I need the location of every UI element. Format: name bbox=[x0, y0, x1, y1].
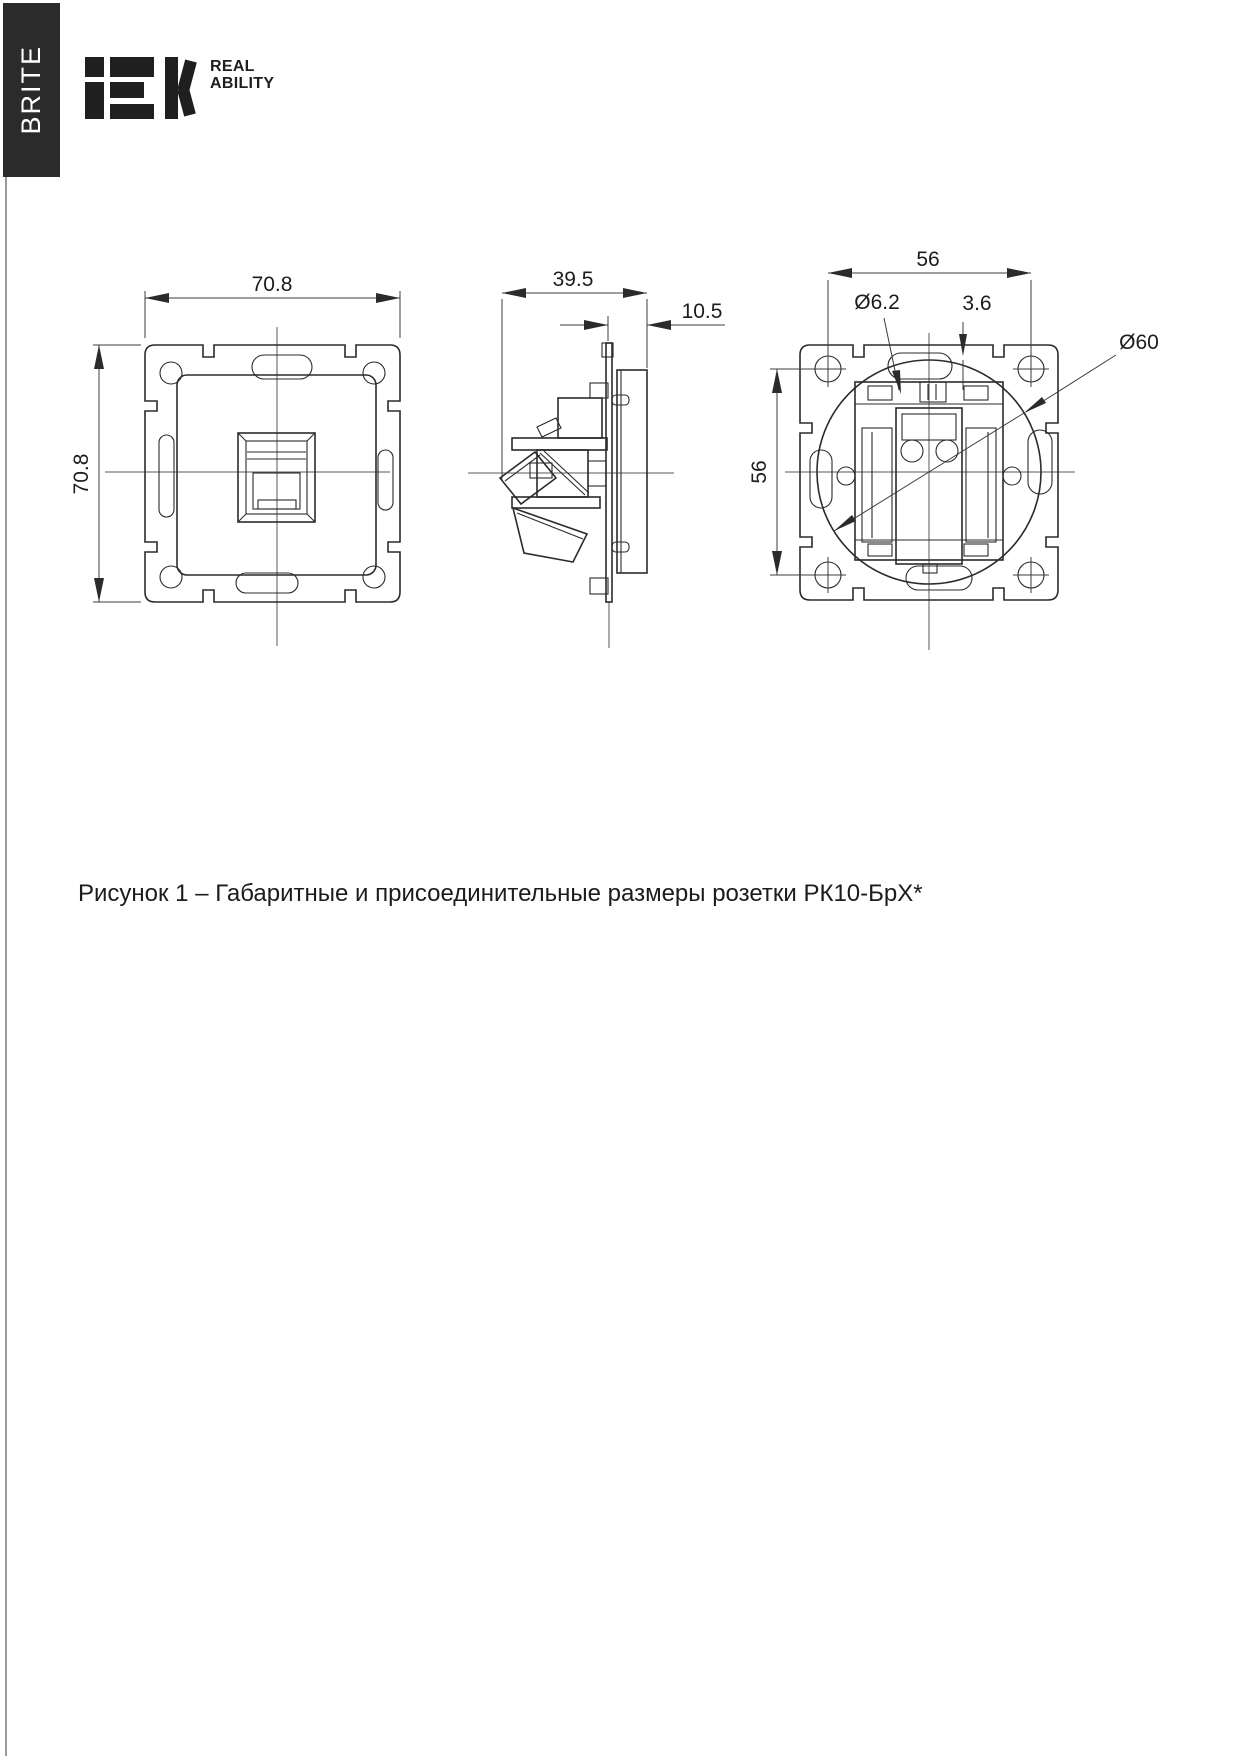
technical-drawing: 70.8 70.8 bbox=[0, 0, 1246, 1756]
back-slot-bottom bbox=[906, 566, 972, 590]
terminal-hole bbox=[901, 440, 923, 462]
front-slot-left bbox=[159, 435, 174, 517]
dim-claw-offset: 3.6 bbox=[962, 292, 991, 315]
side-lower-arm bbox=[512, 497, 600, 508]
side-body-slot bbox=[530, 463, 552, 478]
dim-mount-circle-diameter: Ø60 bbox=[1119, 331, 1159, 354]
front-slot-right bbox=[378, 450, 393, 510]
front-slot-bottom bbox=[236, 573, 298, 593]
dim-side-depth: 39.5 bbox=[553, 268, 594, 291]
front-screw-hole bbox=[363, 362, 385, 384]
side-upper-arm bbox=[512, 438, 607, 450]
front-view: 70.8 70.8 bbox=[70, 273, 400, 646]
iek-logo bbox=[85, 57, 191, 119]
dim-side-flange-depth: 10.5 bbox=[682, 300, 723, 323]
dim-front-width: 70.8 bbox=[252, 273, 293, 296]
document-page: BRITE IEK REAL ABILITY Рисунок 1 – Габар… bbox=[0, 0, 1246, 1756]
dim-slot-diameter: Ø6.2 bbox=[854, 291, 900, 314]
dim-back-width: 56 bbox=[916, 248, 939, 271]
front-screw-hole bbox=[363, 566, 385, 588]
terminal-hole bbox=[936, 440, 958, 462]
side-view: 39.5 10.5 bbox=[468, 268, 725, 648]
front-screw-hole bbox=[160, 566, 182, 588]
dim-back-height: 56 bbox=[748, 460, 771, 483]
front-screw-hole bbox=[160, 362, 182, 384]
side-upper-block bbox=[558, 398, 602, 438]
back-view: 56 56 Ø6.2 3.6 Ø60 bbox=[748, 248, 1159, 650]
dim-front-height: 70.8 bbox=[70, 454, 93, 495]
